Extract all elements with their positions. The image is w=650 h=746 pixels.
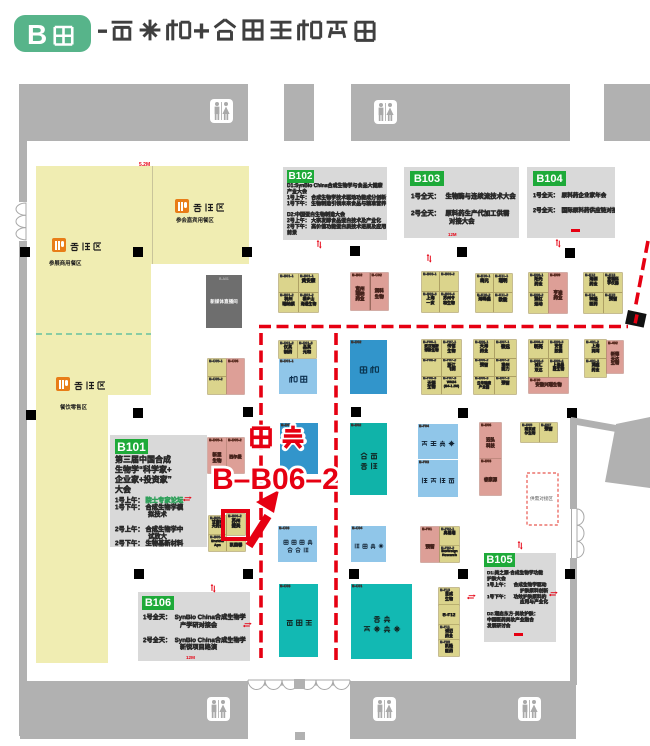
svg-text:B–B06–2: B–B06–2 [212, 463, 339, 496]
svg-text:供需对接区: 供需对接区 [530, 495, 553, 502]
